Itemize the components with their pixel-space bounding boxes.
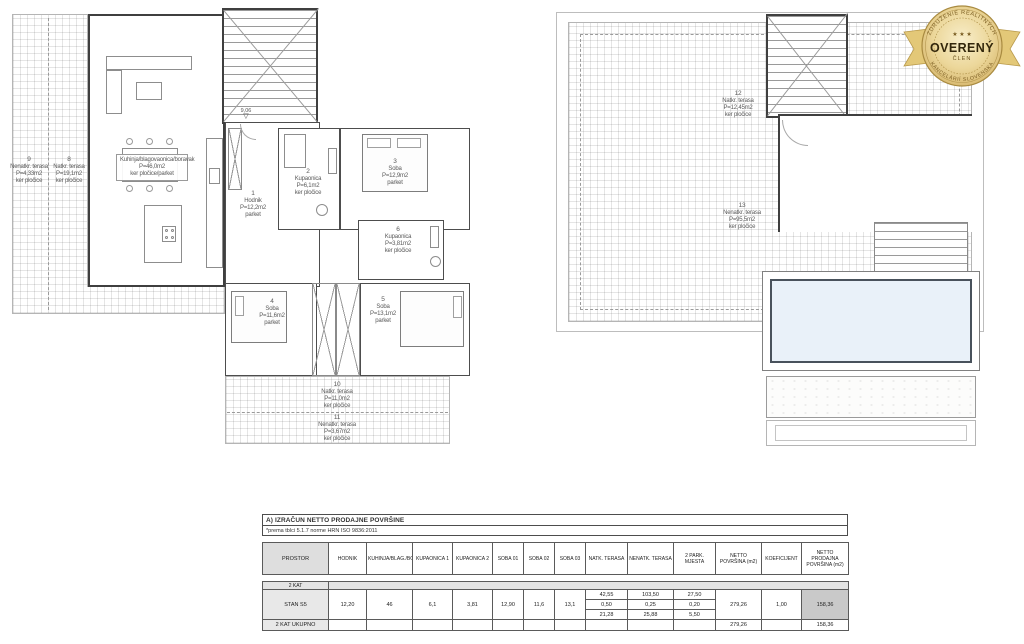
wardrobe xyxy=(228,128,242,190)
col-header: KUPAONICA 1 xyxy=(413,543,453,575)
kitchen-counter xyxy=(206,138,223,268)
cell-kupaonica2: 3,81 xyxy=(453,590,493,620)
col-header: NETTO POVRŠINA (m2) xyxy=(716,543,762,575)
cell-park-weighted: 5,50 xyxy=(674,610,716,620)
room-label: 3 Soba P=12,9m2 parket xyxy=(372,158,418,187)
terrace-divider-dashed xyxy=(48,18,49,310)
col-header: SOBA 01 xyxy=(493,543,524,575)
staircase xyxy=(766,14,848,118)
room-label: 6 Kupaonica P=3,81m2 ker pločice xyxy=(372,226,424,255)
sink xyxy=(209,168,220,184)
staircase xyxy=(222,8,318,124)
area-calculation-table: A) IZRAČUN NETTO PRODAJNE POVRŠINE *prem… xyxy=(262,514,848,631)
pool-deck-edge xyxy=(766,420,976,446)
col-header: NENATK. TERASA xyxy=(628,543,674,575)
room-label: 8 Natkr. terasa P=19,1m2 ker pločice xyxy=(50,156,88,185)
col-header: NATK. TERASA xyxy=(586,543,628,575)
room-label: 5 Soba P=13,1m2 parket xyxy=(362,296,404,325)
row-label: STAN S5 xyxy=(263,590,329,620)
cell-natk-koef: 0,50 xyxy=(586,600,628,610)
floor-plan-level2: 9 Nenatkr. terasa P=4,33m2 ker pločice 8… xyxy=(10,8,470,444)
header-table: PROSTOR HODNIK KUHINJA/BLAG./BORAV. KUPA… xyxy=(262,542,849,575)
chair xyxy=(146,185,153,192)
pool-deck-concrete xyxy=(766,376,976,418)
washbasin xyxy=(430,226,439,248)
cell-natk-area: 42,55 xyxy=(586,590,628,600)
room-label: 2 Kupaonica P=6,1m2 ker pločice xyxy=(282,168,334,197)
col-header: KUPAONICA 2 xyxy=(453,543,493,575)
total-netto: 279,26 xyxy=(716,620,762,631)
total-label: 2 KAT UKUPNO xyxy=(263,620,329,631)
badge-stars-icon: ★ ★ ★ xyxy=(952,31,971,38)
chair xyxy=(126,138,133,145)
wardrobe xyxy=(312,283,336,376)
col-header: NETTO PRODAJNA POVRŠINA (m2) xyxy=(802,543,849,575)
badge-title: OVERENÝ xyxy=(930,40,994,55)
col-header: SOBA 03 xyxy=(555,543,586,575)
section-label: 2 KAT xyxy=(263,582,329,590)
cell-hodnik: 12,20 xyxy=(329,590,367,620)
cell-soba03: 13,1 xyxy=(555,590,586,620)
sofa xyxy=(106,56,192,70)
coffee-table xyxy=(136,82,162,100)
room-label: 1 Hodnik P=12,2m2 parket xyxy=(231,190,275,219)
cell-park-koef: 0,20 xyxy=(674,600,716,610)
shower xyxy=(284,134,306,168)
room-label-kitchen: Kuhinja/blagovaonica/boravak P=46,0m2 ke… xyxy=(116,154,188,181)
col-header: SOBA 02 xyxy=(524,543,555,575)
col-header: HODNIK xyxy=(329,543,367,575)
cell-kupaonica1: 6,1 xyxy=(413,590,453,620)
cell-prodajna: 158,36 xyxy=(802,590,849,620)
cell-nenatk-koef: 0,25 xyxy=(628,600,674,610)
cell-netto: 279,26 xyxy=(716,590,762,620)
cell-nenatk-area: 103,50 xyxy=(628,590,674,600)
terrace-divider-dashed xyxy=(227,412,448,413)
level-marker: 9,06 ▽ xyxy=(235,108,257,120)
cell-soba02: 11,6 xyxy=(524,590,555,620)
cell-kuhinja: 46 xyxy=(367,590,413,620)
level-triangle-icon: ▽ xyxy=(235,114,257,120)
total-prodajna: 158,36 xyxy=(802,620,849,631)
col-header: KOEFICIJENT xyxy=(762,543,802,575)
table-subtitle: *prema tblci 5.1.7 norme HRN ISO 9836:20… xyxy=(263,526,847,535)
room-label: 13 Nenatkr. terasa P=95,5m2 ker pločice xyxy=(710,202,774,231)
col-header: KUHINJA/BLAG./BORAV. xyxy=(367,543,413,575)
table-title: A) IZRAČUN NETTO PRODAJNE POVRŠINE xyxy=(263,515,847,526)
cell-soba01: 12,90 xyxy=(493,590,524,620)
toilet xyxy=(316,204,328,216)
bed xyxy=(400,291,464,347)
exterior-steps xyxy=(874,222,968,274)
toilet xyxy=(430,256,441,267)
chair xyxy=(146,138,153,145)
cell-koeficijent: 1,00 xyxy=(762,590,802,620)
room-label: 11 Nenatkr. terasa P=3,67m2 ker pločice xyxy=(305,414,369,443)
col-header: 2 PARK. MJESTA xyxy=(674,543,716,575)
room-label: 9 Nenatkr. terasa P=4,33m2 ker pločice xyxy=(10,156,48,185)
sofa xyxy=(106,70,122,114)
room-label: 4 Soba P=11,6m2 parket xyxy=(250,298,294,327)
section-strip xyxy=(329,582,849,590)
room-label: 12 Natkr. terasa P=12,45m2 ker pločice xyxy=(708,90,768,119)
stove-icon xyxy=(162,226,176,242)
room-label: 10 Natkr. terasa P=11,0m2 ker pločice xyxy=(305,381,369,410)
pool xyxy=(762,271,980,371)
table-title-box: A) IZRAČUN NETTO PRODAJNE POVRŠINE *prem… xyxy=(262,514,848,536)
cell-natk-weighted: 21,28 xyxy=(586,610,628,620)
chair xyxy=(126,185,133,192)
col-header-prostor: PROSTOR xyxy=(263,543,329,575)
cell-park-area: 27,50 xyxy=(674,590,716,600)
pool-water xyxy=(770,279,972,363)
body-table: 2 KAT STAN S5 12,20 46 6,1 3,81 12,90 11… xyxy=(262,581,849,631)
chair xyxy=(166,138,173,145)
badge-subtitle: ČLEN xyxy=(953,55,972,62)
chair xyxy=(166,185,173,192)
wardrobe xyxy=(336,283,360,376)
cell-nenatk-weighted: 25,88 xyxy=(628,610,674,620)
terrace-hatch-bottom xyxy=(12,287,225,314)
certification-badge: ZDRUŽENIE REALITNÝCH ★ ★ ★ OVERENÝ ČLEN … xyxy=(903,2,1021,94)
